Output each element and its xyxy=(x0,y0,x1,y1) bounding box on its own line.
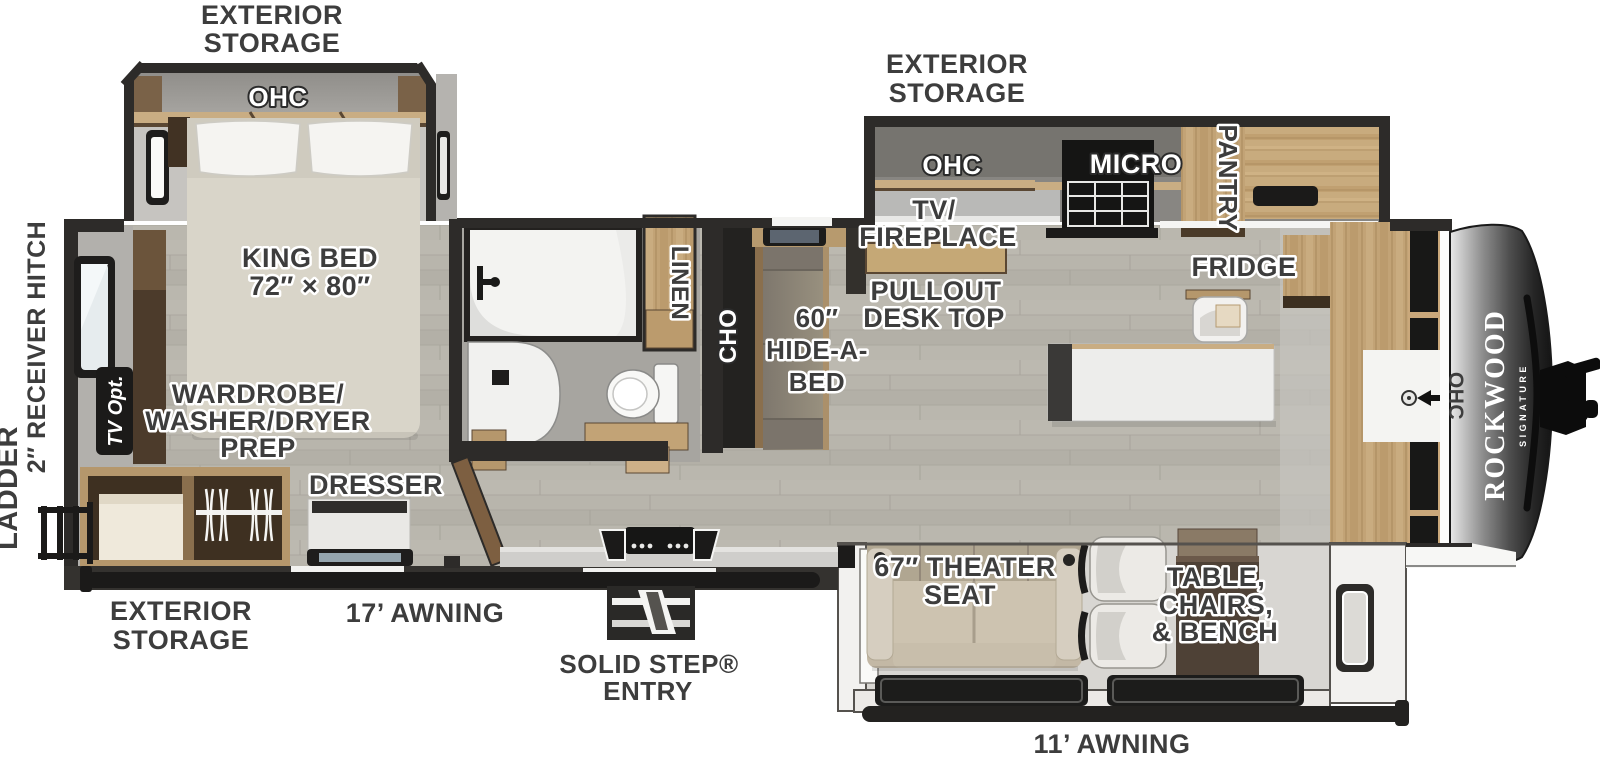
svg-text:LADDER: LADDER xyxy=(0,426,24,550)
svg-text:17’ AWNING: 17’ AWNING xyxy=(346,598,505,628)
svg-text:KING BED: KING BED xyxy=(242,243,378,273)
svg-text:& BENCH: & BENCH xyxy=(1152,617,1279,647)
svg-text:SIGNATURE: SIGNATURE xyxy=(1518,363,1528,447)
svg-text:SOLID STEP®: SOLID STEP® xyxy=(559,649,738,679)
svg-text:WASHER/DRYER: WASHER/DRYER xyxy=(145,406,371,436)
svg-text:11’ AWNING: 11’ AWNING xyxy=(1033,729,1190,758)
svg-text:PREP: PREP xyxy=(220,433,296,463)
svg-text:FIREPLACE: FIREPLACE xyxy=(859,222,1017,252)
svg-text:SEAT: SEAT xyxy=(924,580,996,610)
svg-text:BED: BED xyxy=(789,367,845,397)
svg-text:PULLOUT: PULLOUT xyxy=(871,276,1002,306)
svg-text:TABLE,: TABLE, xyxy=(1167,562,1266,592)
svg-text:DESK TOP: DESK TOP xyxy=(863,303,1005,333)
svg-text:LINEN: LINEN xyxy=(666,246,693,321)
svg-text:FRIDGE: FRIDGE xyxy=(1191,252,1296,282)
svg-text:72″ × 80″: 72″ × 80″ xyxy=(249,271,370,301)
svg-text:67″ THEATER: 67″ THEATER xyxy=(874,552,1055,582)
svg-text:STORAGE: STORAGE xyxy=(889,78,1026,108)
svg-text:OHC: OHC xyxy=(248,82,307,112)
svg-text:MICRO: MICRO xyxy=(1090,149,1183,179)
svg-text:TV/: TV/ xyxy=(912,195,956,225)
svg-text:TV Opt.: TV Opt. xyxy=(105,375,127,446)
svg-text:2″ RECEIVER HITCH: 2″ RECEIVER HITCH xyxy=(23,221,51,473)
svg-text:HIDE-A-: HIDE-A- xyxy=(766,335,868,365)
svg-text:60″: 60″ xyxy=(796,303,839,333)
svg-text:ROCKWOOD: ROCKWOOD xyxy=(1480,309,1511,501)
svg-text:DRESSER: DRESSER xyxy=(309,470,443,500)
svg-text:OHC: OHC xyxy=(922,150,981,180)
svg-text:EXTERIOR: EXTERIOR xyxy=(110,596,252,626)
svg-text:CHO: CHO xyxy=(715,309,742,364)
svg-text:ENTRY: ENTRY xyxy=(603,676,693,706)
svg-text:PANTRY: PANTRY xyxy=(1213,125,1243,232)
svg-text:WARDROBE/: WARDROBE/ xyxy=(172,379,345,409)
svg-text:CHAIRS,: CHAIRS, xyxy=(1159,590,1274,620)
svg-text:STORAGE: STORAGE xyxy=(204,28,341,58)
svg-text:EXTERIOR: EXTERIOR xyxy=(886,49,1028,79)
svg-text:STORAGE: STORAGE xyxy=(113,625,250,655)
svg-text:OHC: OHC xyxy=(1444,372,1467,420)
svg-text:EXTERIOR: EXTERIOR xyxy=(201,0,343,30)
